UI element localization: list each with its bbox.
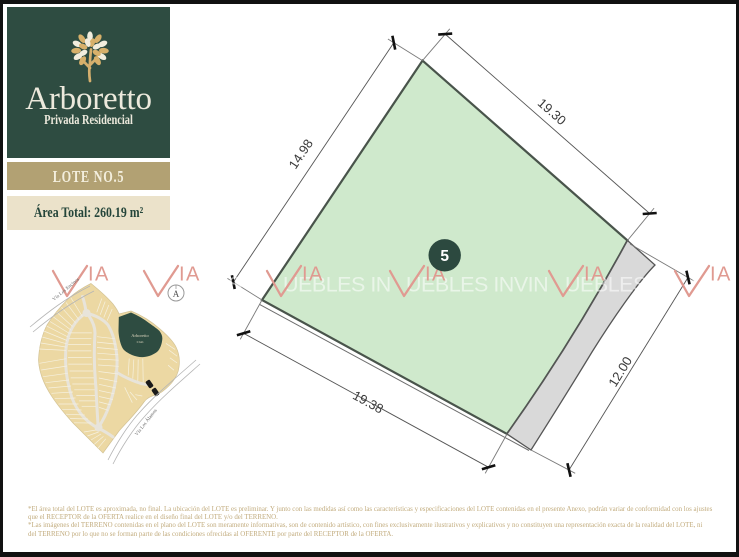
svg-text:Arboretto: Arboretto [131,333,149,338]
svg-text:IA: IA [584,264,606,286]
svg-text:Vía Los Álamos: Vía Los Álamos [134,408,159,438]
svg-text:Club: Club [137,340,144,344]
svg-text:14.98: 14.98 [285,136,316,171]
svg-text:5: 5 [440,248,449,265]
svg-text:UEBLES IN: UEBLES IN [283,273,391,297]
svg-text:12.00: 12.00 [605,354,635,390]
svg-text:IA: IA [710,264,732,286]
svg-text:IA: IA [302,264,324,286]
svg-text:A: A [173,289,180,299]
svg-text:19.30: 19.30 [535,95,569,128]
svg-text:UEBLES IN: UEBLES IN [565,273,673,297]
svg-text:19.38: 19.38 [350,388,386,417]
